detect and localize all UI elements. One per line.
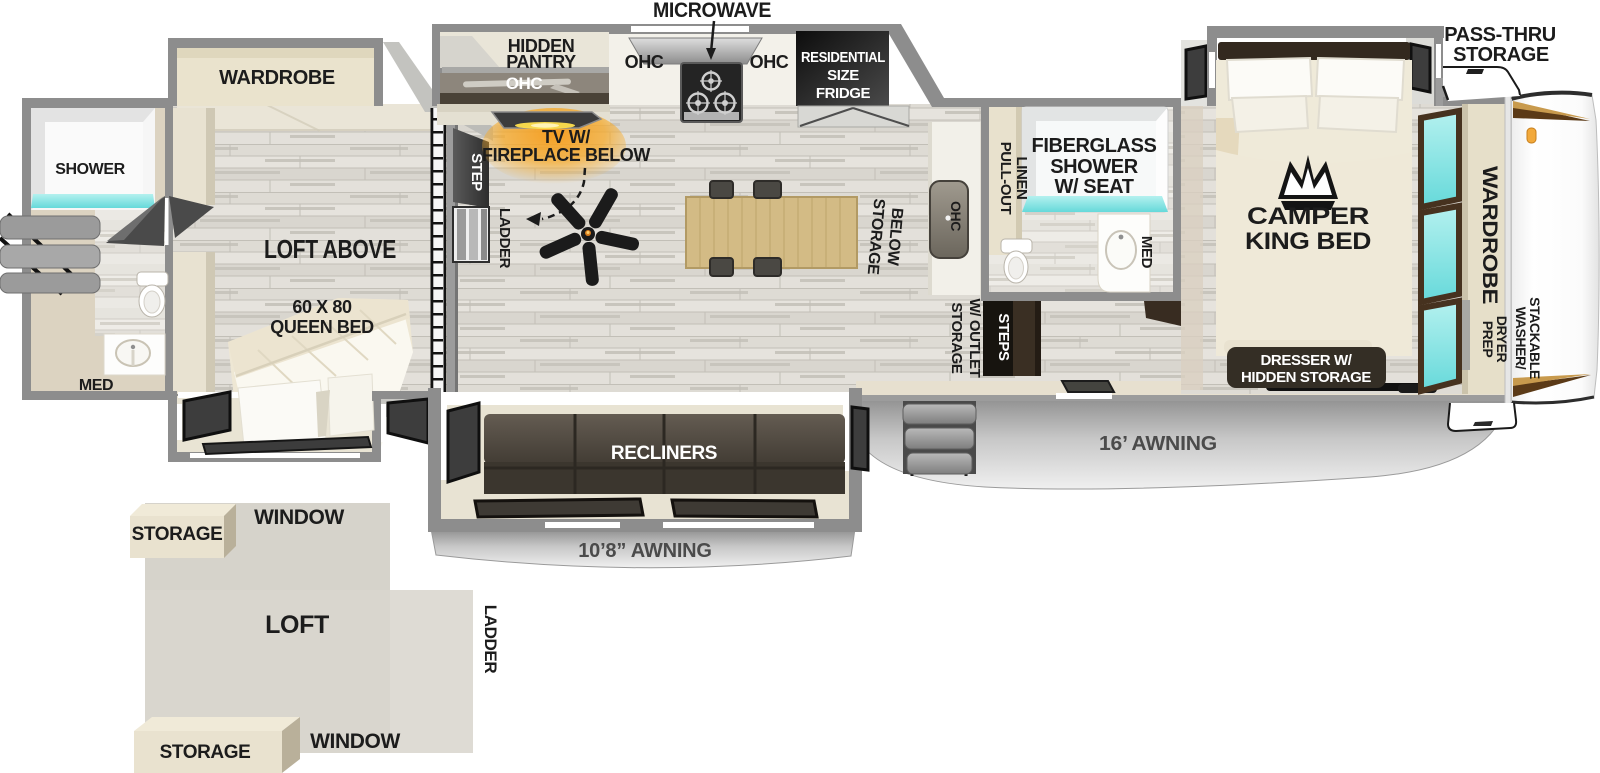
svg-text:OHC: OHC	[625, 52, 664, 72]
svg-text:STEPS: STEPS	[995, 313, 1012, 361]
svg-text:STORAGE: STORAGE	[1453, 44, 1549, 66]
svg-text:PASS-THRU: PASS-THRU	[1444, 24, 1556, 46]
svg-text:FIREPLACE BELOW: FIREPLACE BELOW	[482, 145, 650, 165]
svg-text:MICROWAVE: MICROWAVE	[653, 0, 771, 22]
svg-text:MED: MED	[79, 377, 113, 394]
svg-text:PREP: PREP	[1480, 321, 1496, 358]
svg-text:PULL-OUT: PULL-OUT	[997, 142, 1014, 215]
svg-text:MED: MED	[1138, 236, 1155, 269]
svg-text:SIZE: SIZE	[827, 67, 859, 84]
svg-text:OHC: OHC	[948, 201, 964, 231]
svg-text:LOFT: LOFT	[265, 611, 329, 639]
svg-text:FIBERGLASS: FIBERGLASS	[1032, 135, 1157, 157]
svg-text:WASHER/: WASHER/	[1513, 307, 1529, 370]
svg-text:WINDOW: WINDOW	[254, 506, 344, 529]
svg-text:CAMPER: CAMPER	[1247, 203, 1369, 230]
svg-text:SHOWER: SHOWER	[1050, 156, 1139, 178]
svg-text:PANTRY: PANTRY	[506, 52, 576, 72]
svg-text:WARDROBE: WARDROBE	[1478, 166, 1501, 304]
svg-text:LOFT ABOVE: LOFT ABOVE	[264, 234, 396, 264]
svg-text:10’8” AWNING: 10’8” AWNING	[578, 540, 712, 562]
svg-text:QUEEN BED: QUEEN BED	[270, 317, 374, 337]
svg-text:60 X 80: 60 X 80	[292, 297, 352, 317]
svg-text:WINDOW: WINDOW	[310, 730, 400, 753]
svg-text:WARDROBE: WARDROBE	[219, 67, 335, 89]
svg-text:STORAGE: STORAGE	[948, 302, 965, 373]
svg-text:SHOWER: SHOWER	[55, 161, 125, 178]
svg-text:TV W/: TV W/	[542, 127, 590, 147]
svg-text:16’ AWNING: 16’ AWNING	[1099, 433, 1217, 455]
svg-text:W/ SEAT: W/ SEAT	[1054, 176, 1133, 198]
svg-text:FRIDGE: FRIDGE	[816, 85, 871, 102]
svg-text:LADDER: LADDER	[481, 605, 500, 674]
svg-text:HIDDEN STORAGE: HIDDEN STORAGE	[1241, 369, 1371, 386]
svg-text:OHC: OHC	[750, 52, 789, 72]
svg-text:W/ OUTLET: W/ OUTLET	[966, 299, 983, 378]
svg-text:STORAGE: STORAGE	[132, 524, 223, 545]
svg-text:OHC: OHC	[506, 74, 543, 93]
svg-text:RESIDENTIAL: RESIDENTIAL	[801, 49, 885, 66]
svg-text:RECLINERS: RECLINERS	[611, 443, 717, 464]
svg-text:KING BED: KING BED	[1245, 228, 1371, 255]
svg-text:LINEN: LINEN	[1013, 156, 1030, 199]
svg-text:STORAGE: STORAGE	[160, 742, 251, 763]
svg-text:LADDER: LADDER	[496, 208, 513, 269]
svg-text:DRESSER W/: DRESSER W/	[1260, 352, 1352, 369]
